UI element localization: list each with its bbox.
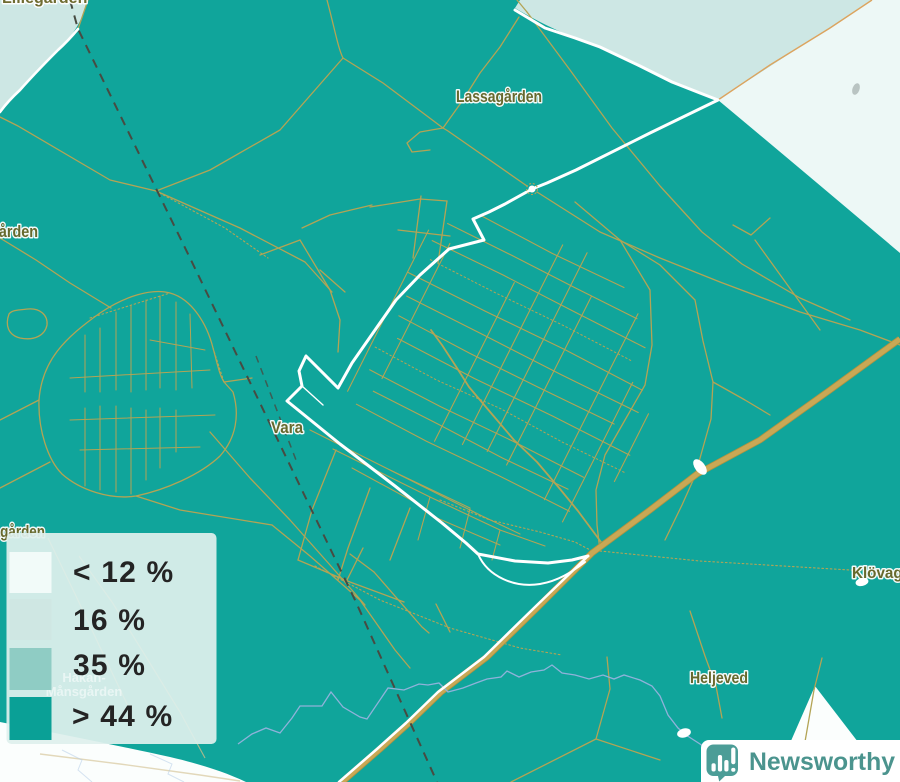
- svg-text:Heljeved: Heljeved: [690, 670, 748, 687]
- svg-text:< 12 %: < 12 %: [73, 556, 174, 589]
- svg-text:Newsworthy: Newsworthy: [749, 748, 895, 776]
- svg-text:Vara: Vara: [271, 418, 303, 437]
- svg-text:35 %: 35 %: [73, 649, 146, 682]
- svg-text:Lassagården: Lassagården: [456, 87, 542, 106]
- svg-text:Klövagården: Klövagården: [852, 564, 900, 582]
- svg-text:Lillegården: Lillegården: [2, 0, 87, 7]
- svg-text:> 44 %: > 44 %: [72, 700, 173, 733]
- svg-text:Månsgården: Månsgården: [46, 684, 123, 699]
- svg-text:16 %: 16 %: [73, 604, 146, 637]
- svg-text:Smedsgården: Smedsgården: [0, 223, 38, 241]
